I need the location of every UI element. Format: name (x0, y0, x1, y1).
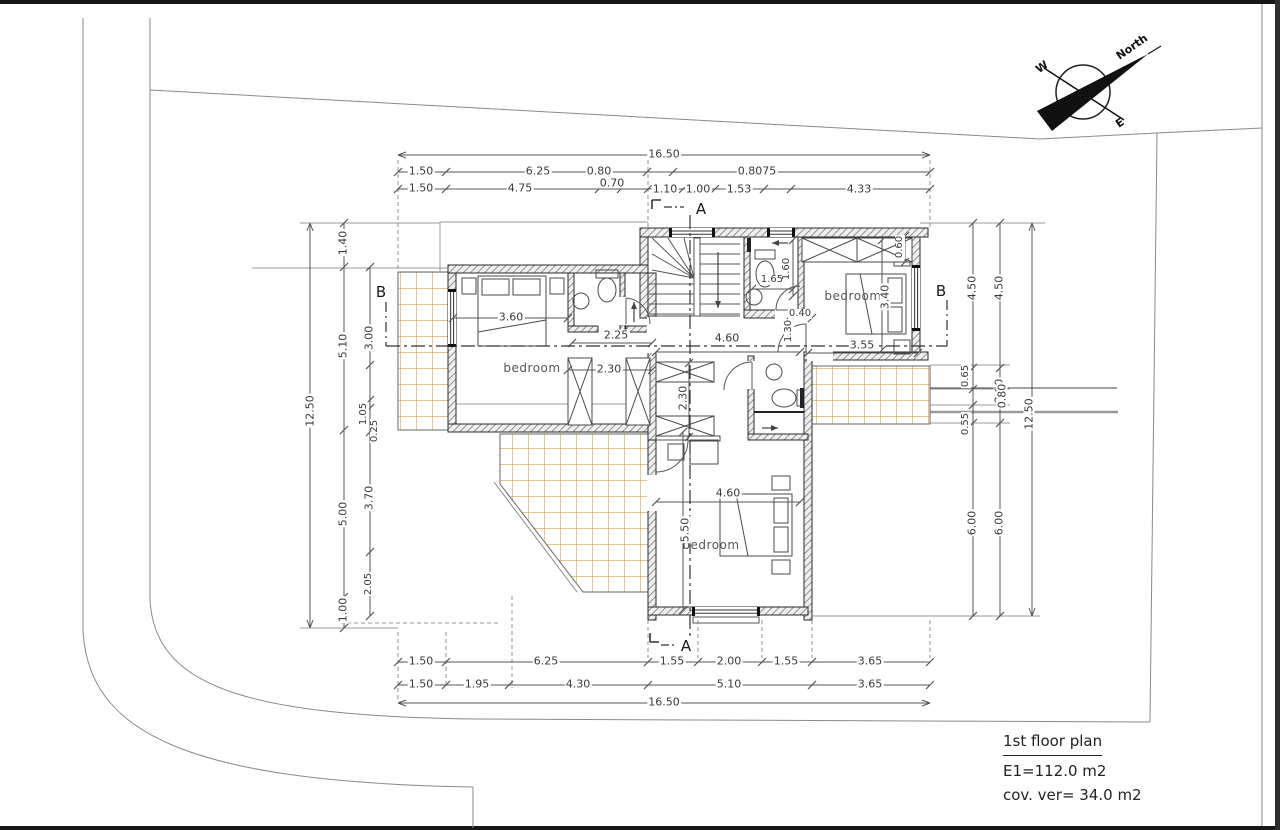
dim-bottom-2-00: 2.00 (716, 656, 743, 667)
dim-bottom-5-10: 5.10 (716, 679, 743, 690)
room-label-bedroom-northeast: bedroom (824, 289, 881, 303)
dim-interior-5-50: 5.50 (680, 517, 691, 544)
dim-top-0-70: 0.70 (599, 178, 626, 189)
dim-left-1-40: 1.40 (338, 230, 349, 257)
dim-interior-1-60: 1.60 (782, 257, 792, 281)
floor-plan-drawing: bedroom bedroom bedroom A A B B North W … (0, 0, 1280, 830)
dim-interior-0-60: 0.60 (895, 235, 905, 259)
section-label-a-bottom: A (681, 637, 691, 655)
dim-left-1-00: 1.00 (338, 597, 349, 624)
dim-top-6-25: 6.25 (525, 166, 552, 177)
section-label-b-left: B (376, 283, 386, 301)
dim-bottom-1-55: 1.55 (659, 656, 686, 667)
room-label-bedroom-west: bedroom (503, 361, 560, 375)
dim-interior-2-30: 2.30 (678, 385, 689, 412)
dim-right-4-50: 4.50 (967, 275, 978, 302)
title-block: 1st floor plan E1=112.0 m2 cov. ver= 34.… (1003, 730, 1142, 807)
dim-right-12-50: 12.50 (1024, 397, 1035, 431)
dim-top-0-80: 0.80 (586, 166, 613, 177)
dim-top-1-50: 1.50 (408, 183, 435, 194)
section-label-a-top: A (696, 200, 706, 218)
dim-bottom-1-95: 1.95 (464, 679, 491, 690)
covered-veranda-text: cov. ver= 34.0 m2 (1003, 784, 1142, 807)
dim-interior-3-55: 3.55 (849, 340, 876, 351)
section-label-b-right: B (936, 282, 946, 300)
dim-right-6-00: 6.00 (967, 510, 978, 537)
dim-bottom-6-25: 6.25 (533, 656, 560, 667)
dim-right-6-00: 6.00 (994, 510, 1005, 537)
dim-left-5-10: 5.10 (338, 333, 349, 360)
dim-left-1-05: 1.05 (359, 402, 369, 426)
floor-area-text: E1=112.0 m2 (1003, 760, 1142, 783)
labels-layer: bedroom bedroom bedroom A A B B North W … (0, 0, 1280, 830)
dim-left-0-25: 0.25 (370, 419, 380, 443)
dim-bottom-16-50: 16.50 (647, 697, 681, 708)
dim-right-4-50: 4.50 (994, 275, 1005, 302)
dim-top-4-33: 4.33 (846, 184, 873, 195)
compass-east-label: E (1113, 116, 1127, 131)
dim-right-0-80: 0.80 (997, 383, 1008, 410)
dim-bottom-1-50: 1.50 (408, 679, 435, 690)
dim-bottom-1-50: 1.50 (408, 656, 435, 667)
dim-interior-3-60: 3.60 (498, 312, 525, 323)
dim-interior-1-30: 1.30 (784, 319, 794, 343)
dim-right-0-65: 0.65 (961, 364, 971, 388)
dim-top-1-00: 1.00 (685, 184, 712, 195)
dim-top-4-75: 4.75 (507, 183, 534, 194)
dim-interior-3-40: 3.40 (880, 284, 891, 311)
dim-top-1-50: 1.50 (408, 166, 435, 177)
dim-bottom-3-65: 3.65 (857, 656, 884, 667)
dim-left-12-50: 12.50 (305, 394, 316, 428)
dim-top-1-53: 1.53 (726, 184, 753, 195)
compass-west-label: W (1033, 58, 1050, 76)
dim-bottom-3-65: 3.65 (857, 679, 884, 690)
dim-interior-0-40: 0.40 (788, 309, 812, 319)
dim-top-0-8075: 0.8075 (737, 166, 778, 177)
dim-left-5-00: 5.00 (338, 501, 349, 528)
dim-interior-2-25: 2.25 (603, 330, 630, 341)
dim-top-16-50: 16.50 (647, 149, 681, 160)
compass-north-label: North (1114, 32, 1150, 63)
dim-top-1-10: 1.10 (652, 184, 679, 195)
dim-interior-2-30: 2.30 (596, 364, 623, 375)
dim-interior-4-60: 4.60 (714, 333, 741, 344)
dim-left-2-05: 2.05 (364, 572, 374, 596)
dim-left-3-00: 3.00 (364, 325, 375, 352)
dim-bottom-4-30: 4.30 (565, 679, 592, 690)
dim-right-0-55: 0.55 (961, 412, 971, 436)
drawing-title: 1st floor plan (1003, 730, 1102, 756)
compass-south-label: S (1042, 110, 1056, 125)
dim-interior-4-60: 4.60 (715, 488, 742, 499)
dim-bottom-1-55: 1.55 (773, 656, 800, 667)
dim-left-3-70: 3.70 (364, 485, 375, 512)
